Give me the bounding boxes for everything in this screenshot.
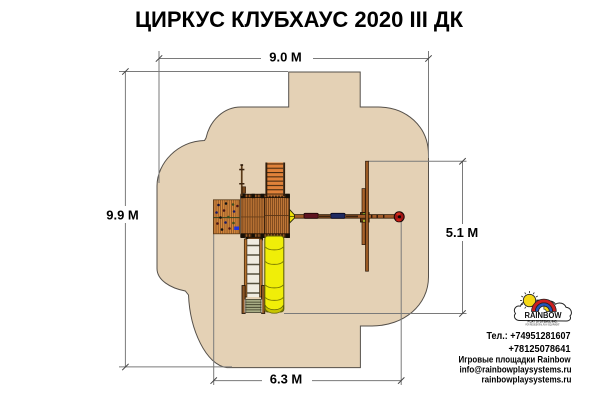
svg-text:9.9 М: 9.9 М xyxy=(106,208,139,223)
svg-text:ЦИРКУС КЛУБХАУС 2020 III ДК: ЦИРКУС КЛУБХАУС 2020 III ДК xyxy=(135,7,464,32)
svg-text:info@rainbowplaysystems.ru: info@rainbowplaysystems.ru xyxy=(460,365,572,375)
svg-text:rainbowplaysystems.ru: rainbowplaysystems.ru xyxy=(482,375,572,385)
svg-text:FOR RESIDENTIAL PLAY EQUIPMENT: FOR RESIDENTIAL PLAY EQUIPMENT xyxy=(526,323,560,326)
svg-text:9.0 М: 9.0 М xyxy=(269,50,302,65)
svg-text:RAINBOW: RAINBOW xyxy=(525,311,562,320)
svg-text:Игровые площадки Rainbow: Игровые площадки Rainbow xyxy=(459,355,572,365)
svg-text:6.3 М: 6.3 М xyxy=(270,372,303,387)
svg-text:5.1 М: 5.1 М xyxy=(446,225,479,240)
svg-text:Тел.: +74951281607: Тел.: +74951281607 xyxy=(487,330,571,342)
svg-text:+78125078641: +78125078641 xyxy=(509,343,571,355)
